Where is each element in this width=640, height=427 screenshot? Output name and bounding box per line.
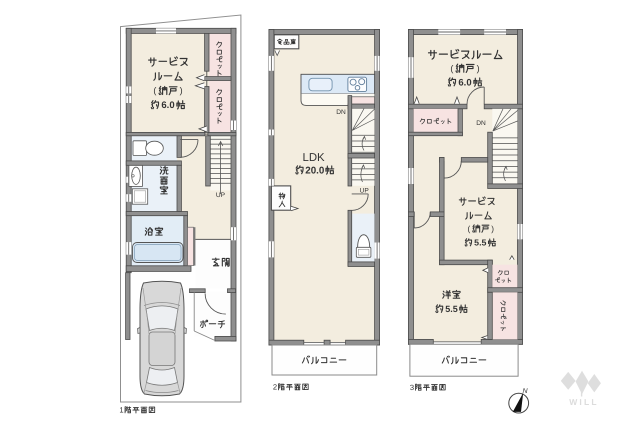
svg-text:3: 3	[410, 383, 414, 392]
svg-text:5.5: 5.5	[445, 304, 458, 314]
svg-text:WILL: WILL	[569, 397, 599, 407]
svg-text:1: 1	[119, 406, 123, 415]
svg-text:(: (	[450, 63, 453, 73]
svg-text:5.5: 5.5	[474, 238, 486, 248]
svg-text:DN: DN	[476, 120, 486, 127]
svg-text:): )	[180, 86, 183, 96]
svg-text:6.0: 6.0	[161, 100, 174, 111]
svg-text:): )	[491, 225, 494, 234]
svg-text:DN: DN	[336, 109, 346, 116]
svg-text:20.0: 20.0	[305, 165, 325, 176]
svg-text:): )	[477, 63, 480, 73]
svg-text:LDK: LDK	[303, 152, 326, 164]
svg-text:(: (	[468, 225, 471, 234]
svg-text:(: (	[153, 86, 156, 96]
svg-text:UP: UP	[360, 187, 370, 194]
svg-text:6.0: 6.0	[458, 77, 471, 88]
svg-text:UP: UP	[216, 192, 226, 199]
svg-text:2: 2	[273, 383, 277, 392]
